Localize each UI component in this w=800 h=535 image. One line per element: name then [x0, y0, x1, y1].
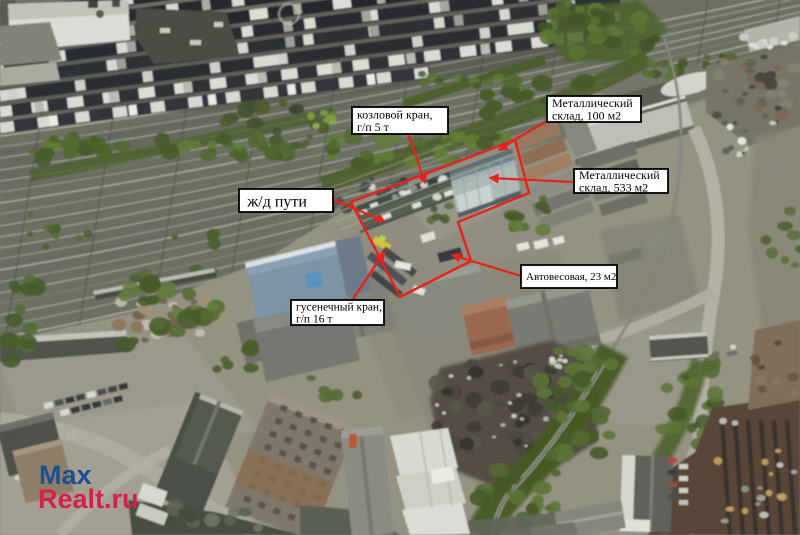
svg-text:г/п 16 т: г/п 16 т — [296, 314, 332, 326]
svg-text:Realt.ru: Realt.ru — [38, 484, 139, 514]
svg-text:ж/д пути: ж/д пути — [244, 194, 307, 211]
svg-text:Автовесовая, 23 м2: Автовесовая, 23 м2 — [526, 271, 616, 283]
svg-text:г/п 5 т: г/п 5 т — [357, 120, 390, 134]
svg-text:гусенечный кран,: гусенечный кран, — [296, 302, 382, 314]
svg-text:склад, 533 м2: склад, 533 м2 — [579, 181, 648, 195]
svg-text:склад, 100 м2: склад, 100 м2 — [552, 109, 621, 123]
